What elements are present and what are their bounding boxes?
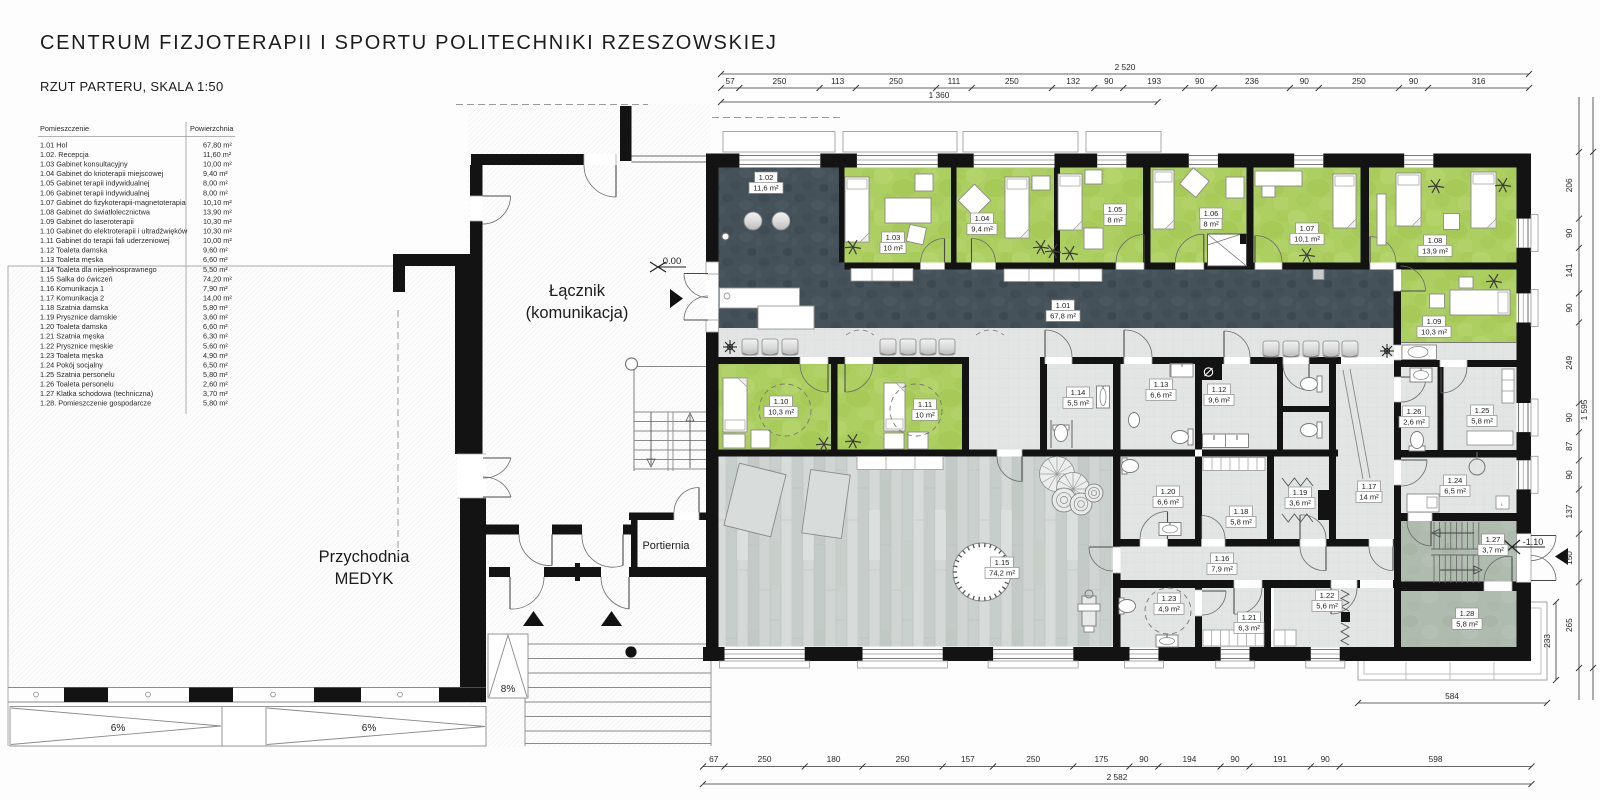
svg-text:1 360: 1 360 (929, 90, 950, 100)
svg-text:90: 90 (1139, 754, 1149, 764)
svg-text:1.02: 1.02 (759, 173, 774, 182)
svg-text:1.12: 1.12 (1212, 385, 1227, 394)
svg-text:3,6 m²: 3,6 m² (1289, 499, 1311, 508)
svg-text:250: 250 (1026, 754, 1040, 764)
svg-text:137: 137 (1564, 504, 1574, 518)
svg-text:13,9 m²: 13,9 m² (1422, 247, 1448, 256)
svg-text:250: 250 (758, 754, 772, 764)
svg-text:1 595: 1 595 (1579, 399, 1589, 420)
svg-text:1.17: 1.17 (1362, 482, 1377, 491)
svg-text:5,8 m²: 5,8 m² (1471, 417, 1493, 426)
svg-text:90: 90 (1321, 754, 1331, 764)
svg-text:RZUT PARTERU, SKALA 1:50: RZUT PARTERU, SKALA 1:50 (40, 79, 224, 94)
svg-text:90: 90 (1564, 303, 1574, 313)
svg-text:7,9 m²: 7,9 m² (1211, 565, 1233, 574)
svg-text:9,4 m²: 9,4 m² (971, 225, 993, 234)
svg-text:6%: 6% (362, 723, 377, 734)
svg-text:1.12 Toaleta damska: 1.12 Toaleta damska (40, 246, 108, 255)
svg-text:1.09: 1.09 (1427, 317, 1442, 326)
svg-text:90: 90 (1564, 413, 1574, 423)
svg-text:90: 90 (1564, 470, 1574, 480)
svg-text:0.00: 0.00 (663, 256, 682, 267)
svg-text:8 m²: 8 m² (1107, 216, 1123, 225)
svg-text:111: 111 (948, 76, 961, 86)
svg-text:14 m²: 14 m² (1359, 493, 1379, 502)
svg-text:⌞: ⌞ (1501, 501, 1504, 507)
svg-text:1.23: 1.23 (1162, 594, 1177, 603)
svg-text:1.01: 1.01 (1056, 301, 1071, 310)
svg-text:206: 206 (1564, 178, 1574, 192)
svg-text:1.16 Komunikacja 1: 1.16 Komunikacja 1 (40, 284, 104, 293)
svg-text:90: 90 (1230, 754, 1240, 764)
svg-text:6,5 m²: 6,5 m² (1444, 487, 1466, 496)
svg-text:1.25 Szatnia personelu: 1.25 Szatnia personelu (40, 370, 115, 379)
svg-text:1.27 Klatka schodowa (technicz: 1.27 Klatka schodowa (techniczna) (40, 389, 153, 398)
svg-text:CENTRUM FIZJOTERAPII I SPORTU: CENTRUM FIZJOTERAPII I SPORTU POLITECHNI… (40, 32, 778, 54)
svg-text:90: 90 (1300, 76, 1310, 86)
svg-text:1.14: 1.14 (1071, 388, 1086, 397)
svg-text:MEDYK: MEDYK (335, 570, 394, 588)
svg-text:6,60 m²: 6,60 m² (203, 255, 228, 264)
svg-text:1.24 Pokój socjalny: 1.24 Pokój socjalny (40, 360, 103, 369)
svg-text:141: 141 (1564, 263, 1574, 277)
svg-text:74,2 m²: 74,2 m² (989, 569, 1015, 578)
svg-text:1.01 Hol: 1.01 Hol (40, 141, 68, 150)
svg-text:1.28: 1.28 (1460, 609, 1475, 618)
svg-text:90: 90 (1195, 76, 1205, 86)
svg-text:67,80 m²: 67,80 m² (203, 141, 232, 150)
svg-text:5,6 m²: 5,6 m² (1316, 602, 1338, 611)
svg-text:6,6 m²: 6,6 m² (1150, 391, 1172, 400)
svg-text:11,60 m²: 11,60 m² (203, 150, 232, 159)
svg-text:1.19 Prysznice damskie: 1.19 Prysznice damskie (40, 313, 117, 322)
svg-text:2 582: 2 582 (1107, 772, 1128, 782)
svg-text:584: 584 (1445, 691, 1459, 701)
svg-text:90: 90 (1564, 228, 1574, 238)
svg-text:90: 90 (1104, 76, 1114, 86)
svg-text:57: 57 (726, 76, 736, 86)
svg-text:67: 67 (709, 754, 719, 764)
svg-text:1.06: 1.06 (1204, 209, 1219, 218)
svg-text:1.13: 1.13 (1154, 380, 1169, 389)
svg-text:1.21: 1.21 (1242, 613, 1257, 622)
svg-text:6,30 m²: 6,30 m² (203, 332, 228, 341)
svg-text:6,60 m²: 6,60 m² (203, 322, 228, 331)
svg-text:598: 598 (1429, 754, 1443, 764)
svg-text:67,8 m²: 67,8 m² (1050, 312, 1076, 321)
svg-text:1.08 Gabinet do światłolecznic: 1.08 Gabinet do światłolecznictwa (40, 207, 151, 216)
svg-text:10 m²: 10 m² (883, 244, 903, 253)
svg-text:3,70 m²: 3,70 m² (203, 389, 228, 398)
svg-text:(komunikacja): (komunikacja) (526, 304, 629, 322)
svg-text:250: 250 (1005, 76, 1019, 86)
svg-text:1.22: 1.22 (1320, 591, 1335, 600)
svg-text:10,30 m²: 10,30 m² (203, 227, 232, 236)
svg-text:4,90 m²: 4,90 m² (203, 351, 228, 360)
svg-text:1.02. Recepcja: 1.02. Recepcja (40, 150, 90, 159)
svg-text:9,6 m²: 9,6 m² (1208, 396, 1230, 405)
svg-text:1.23 Toaleta męska: 1.23 Toaleta męska (40, 351, 104, 360)
svg-text:8,00 m²: 8,00 m² (203, 188, 228, 197)
svg-text:10,00 m²: 10,00 m² (203, 160, 232, 169)
svg-text:250: 250 (889, 76, 903, 86)
svg-text:Przychodnia: Przychodnia (319, 548, 411, 566)
svg-text:1.05: 1.05 (1108, 205, 1123, 214)
svg-text:5,5 m²: 5,5 m² (1067, 399, 1089, 408)
svg-text:10,30 m²: 10,30 m² (203, 217, 232, 226)
svg-text:1.13 Toaleta męska: 1.13 Toaleta męska (40, 255, 104, 264)
svg-text:250: 250 (1352, 76, 1366, 86)
svg-text:7,90 m²: 7,90 m² (203, 284, 228, 293)
svg-text:8,00 m²: 8,00 m² (203, 179, 228, 188)
svg-text:1.20 Toaleta damska: 1.20 Toaleta damska (40, 322, 108, 331)
svg-text:250: 250 (896, 754, 910, 764)
svg-text:1.28. Pomieszczenie gospodarcz: 1.28. Pomieszczenie gospodarcze (40, 399, 151, 408)
svg-text:1.11 Gabinet do terapii fali u: 1.11 Gabinet do terapii fali uderzeniowe… (40, 236, 170, 245)
svg-text:1.11: 1.11 (918, 400, 932, 409)
svg-text:6%: 6% (111, 723, 126, 734)
svg-text:1.04: 1.04 (975, 214, 990, 223)
svg-text:10,3 m²: 10,3 m² (768, 408, 794, 417)
svg-text:1.15 Salka do ćwiczeń: 1.15 Salka do ćwiczeń (40, 274, 113, 283)
svg-text:6,50 m²: 6,50 m² (203, 360, 228, 369)
svg-text:1.16: 1.16 (1215, 554, 1230, 563)
svg-text:1.26 Toaleta personelu: 1.26 Toaleta personelu (40, 380, 114, 389)
svg-text:5,60 m²: 5,60 m² (203, 341, 228, 350)
svg-text:175: 175 (1094, 754, 1108, 764)
svg-text:11,6 m²: 11,6 m² (753, 184, 779, 193)
svg-text:4,9 m²: 4,9 m² (1158, 605, 1180, 614)
svg-text:1.22 Prysznice męskie: 1.22 Prysznice męskie (40, 341, 113, 350)
svg-text:1.04 Gabinet do krioterapii mi: 1.04 Gabinet do krioterapii miejscowej (40, 169, 164, 178)
svg-text:265: 265 (1564, 618, 1574, 632)
svg-text:1.18: 1.18 (1234, 507, 1249, 516)
svg-text:193: 193 (1147, 76, 1161, 86)
svg-text:1.27: 1.27 (1486, 535, 1501, 544)
svg-text:180: 180 (827, 754, 841, 764)
svg-text:10 m²: 10 m² (915, 411, 935, 420)
svg-text:8%: 8% (501, 684, 516, 695)
svg-text:Łącznik: Łącznik (549, 282, 606, 300)
svg-text:87: 87 (1564, 441, 1574, 451)
svg-text:250: 250 (773, 76, 787, 86)
svg-text:13,90 m²: 13,90 m² (203, 207, 232, 216)
svg-text:Portiernia: Portiernia (642, 540, 690, 552)
svg-text:1.21 Szatnia męska: 1.21 Szatnia męska (40, 332, 105, 341)
svg-text:9,60 m²: 9,60 m² (203, 246, 228, 255)
svg-text:194: 194 (1183, 754, 1197, 764)
svg-text:233: 233 (1542, 634, 1552, 648)
svg-text:10,1 m²: 10,1 m² (1294, 235, 1320, 244)
svg-text:3,60 m²: 3,60 m² (203, 313, 228, 322)
svg-text:1.09 Gabinet do laseroterapii: 1.09 Gabinet do laseroterapii (40, 217, 134, 226)
svg-text:249: 249 (1564, 355, 1574, 369)
svg-text:1.15: 1.15 (995, 558, 1010, 567)
svg-text:-1.10: -1.10 (1523, 537, 1544, 547)
svg-text:3,7 m²: 3,7 m² (1482, 546, 1504, 555)
svg-text:10,00 m²: 10,00 m² (203, 236, 232, 245)
svg-text:6,6 m²: 6,6 m² (1157, 498, 1179, 507)
svg-text:1.05 Gabinet terapii indywidua: 1.05 Gabinet terapii indywidualnej (40, 179, 150, 188)
svg-text:8 m²: 8 m² (1203, 220, 1219, 229)
svg-text:1.06 Gabinet terapii indywidua: 1.06 Gabinet terapii indywidualnej (40, 188, 150, 197)
svg-text:236: 236 (1245, 76, 1259, 86)
svg-text:6,3 m²: 6,3 m² (1238, 624, 1260, 633)
svg-text:9,40 m²: 9,40 m² (203, 169, 228, 178)
svg-text:157: 157 (961, 754, 975, 764)
svg-text:316: 316 (1472, 76, 1486, 86)
svg-text:1.19: 1.19 (1293, 488, 1308, 497)
svg-text:1.17 Komunikacja 2: 1.17 Komunikacja 2 (40, 294, 104, 303)
svg-text:1.20: 1.20 (1161, 487, 1176, 496)
svg-text:74,20 m²: 74,20 m² (203, 274, 232, 283)
svg-text:10,10 m²: 10,10 m² (203, 198, 232, 207)
svg-text:1.25: 1.25 (1475, 406, 1490, 415)
svg-text:2,60 m²: 2,60 m² (203, 380, 228, 389)
svg-text:150: 150 (1564, 551, 1574, 565)
svg-text:10,3 m²: 10,3 m² (1421, 328, 1447, 337)
svg-text:5,80 m²: 5,80 m² (203, 399, 228, 408)
svg-text:2 520: 2 520 (1115, 62, 1136, 72)
svg-text:1.24: 1.24 (1448, 476, 1463, 485)
svg-text:5,8 m²: 5,8 m² (1456, 620, 1478, 629)
svg-text:5,80 m²: 5,80 m² (203, 370, 228, 379)
svg-text:1.10: 1.10 (774, 397, 789, 406)
svg-text:1.07 Gabinet do fizykoterapii-: 1.07 Gabinet do fizykoterapii-magnetoter… (40, 198, 187, 207)
svg-text:1.03 Gabinet konsultacyjny: 1.03 Gabinet konsultacyjny (40, 160, 128, 169)
svg-text:1.18 Szatnia damska: 1.18 Szatnia damska (40, 303, 109, 312)
svg-text:2,6 m²: 2,6 m² (1403, 418, 1425, 427)
svg-text:1.10 Gabinet do elektroterapii: 1.10 Gabinet do elektroterapii i ultradź… (40, 227, 188, 236)
svg-text:5,80 m²: 5,80 m² (203, 303, 228, 312)
svg-text:5,8 m²: 5,8 m² (1230, 518, 1252, 527)
svg-text:Pomieszczenie: Pomieszczenie (40, 124, 89, 133)
svg-text:113: 113 (831, 76, 845, 86)
svg-text:191: 191 (1273, 754, 1287, 764)
svg-text:90: 90 (1409, 76, 1419, 86)
svg-text:1.26: 1.26 (1407, 407, 1422, 416)
svg-text:1.08: 1.08 (1428, 236, 1443, 245)
svg-text:Powierzchnia: Powierzchnia (190, 124, 234, 133)
svg-text:132: 132 (1066, 76, 1080, 86)
svg-text:1.03: 1.03 (886, 233, 901, 242)
svg-text:1.07: 1.07 (1300, 224, 1315, 233)
svg-text:14,00 m²: 14,00 m² (203, 294, 232, 303)
